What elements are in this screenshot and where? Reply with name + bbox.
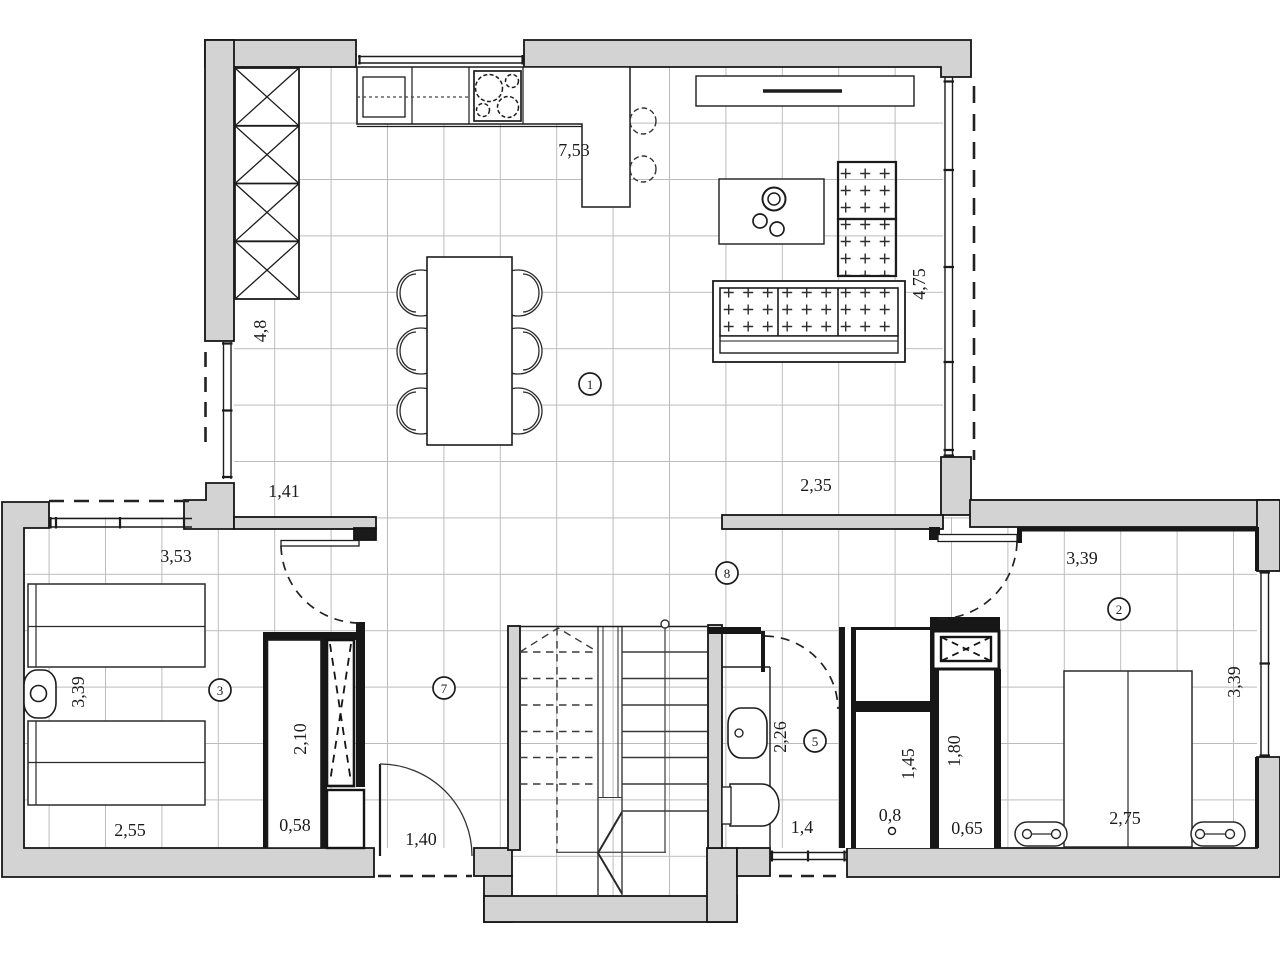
svg-text:7: 7 — [441, 681, 448, 696]
svg-text:1: 1 — [587, 377, 594, 392]
svg-text:1,45: 1,45 — [898, 748, 918, 780]
svg-text:4,75: 4,75 — [909, 268, 929, 300]
svg-text:2,10: 2,10 — [290, 723, 310, 755]
svg-text:2: 2 — [1116, 602, 1123, 617]
svg-text:3,39: 3,39 — [1224, 666, 1244, 698]
svg-text:0,65: 0,65 — [951, 818, 983, 838]
svg-text:4,8: 4,8 — [250, 320, 270, 343]
svg-text:2,35: 2,35 — [800, 475, 832, 495]
svg-text:3,53: 3,53 — [160, 546, 192, 566]
svg-text:0,8: 0,8 — [879, 805, 902, 825]
svg-text:5: 5 — [812, 734, 819, 749]
svg-text:3: 3 — [217, 683, 224, 698]
svg-text:3,39: 3,39 — [68, 676, 88, 708]
svg-text:3,39: 3,39 — [1066, 548, 1098, 568]
svg-text:2,75: 2,75 — [1109, 808, 1141, 828]
svg-text:1,40: 1,40 — [405, 829, 437, 849]
svg-text:7,53: 7,53 — [558, 140, 590, 160]
svg-text:1,4: 1,4 — [791, 817, 814, 837]
svg-text:2,26: 2,26 — [770, 721, 790, 753]
svg-text:8: 8 — [724, 566, 731, 581]
svg-text:1,80: 1,80 — [944, 735, 964, 767]
svg-text:0,58: 0,58 — [279, 815, 311, 835]
svg-text:2,55: 2,55 — [114, 820, 146, 840]
svg-text:1,41: 1,41 — [268, 481, 300, 501]
